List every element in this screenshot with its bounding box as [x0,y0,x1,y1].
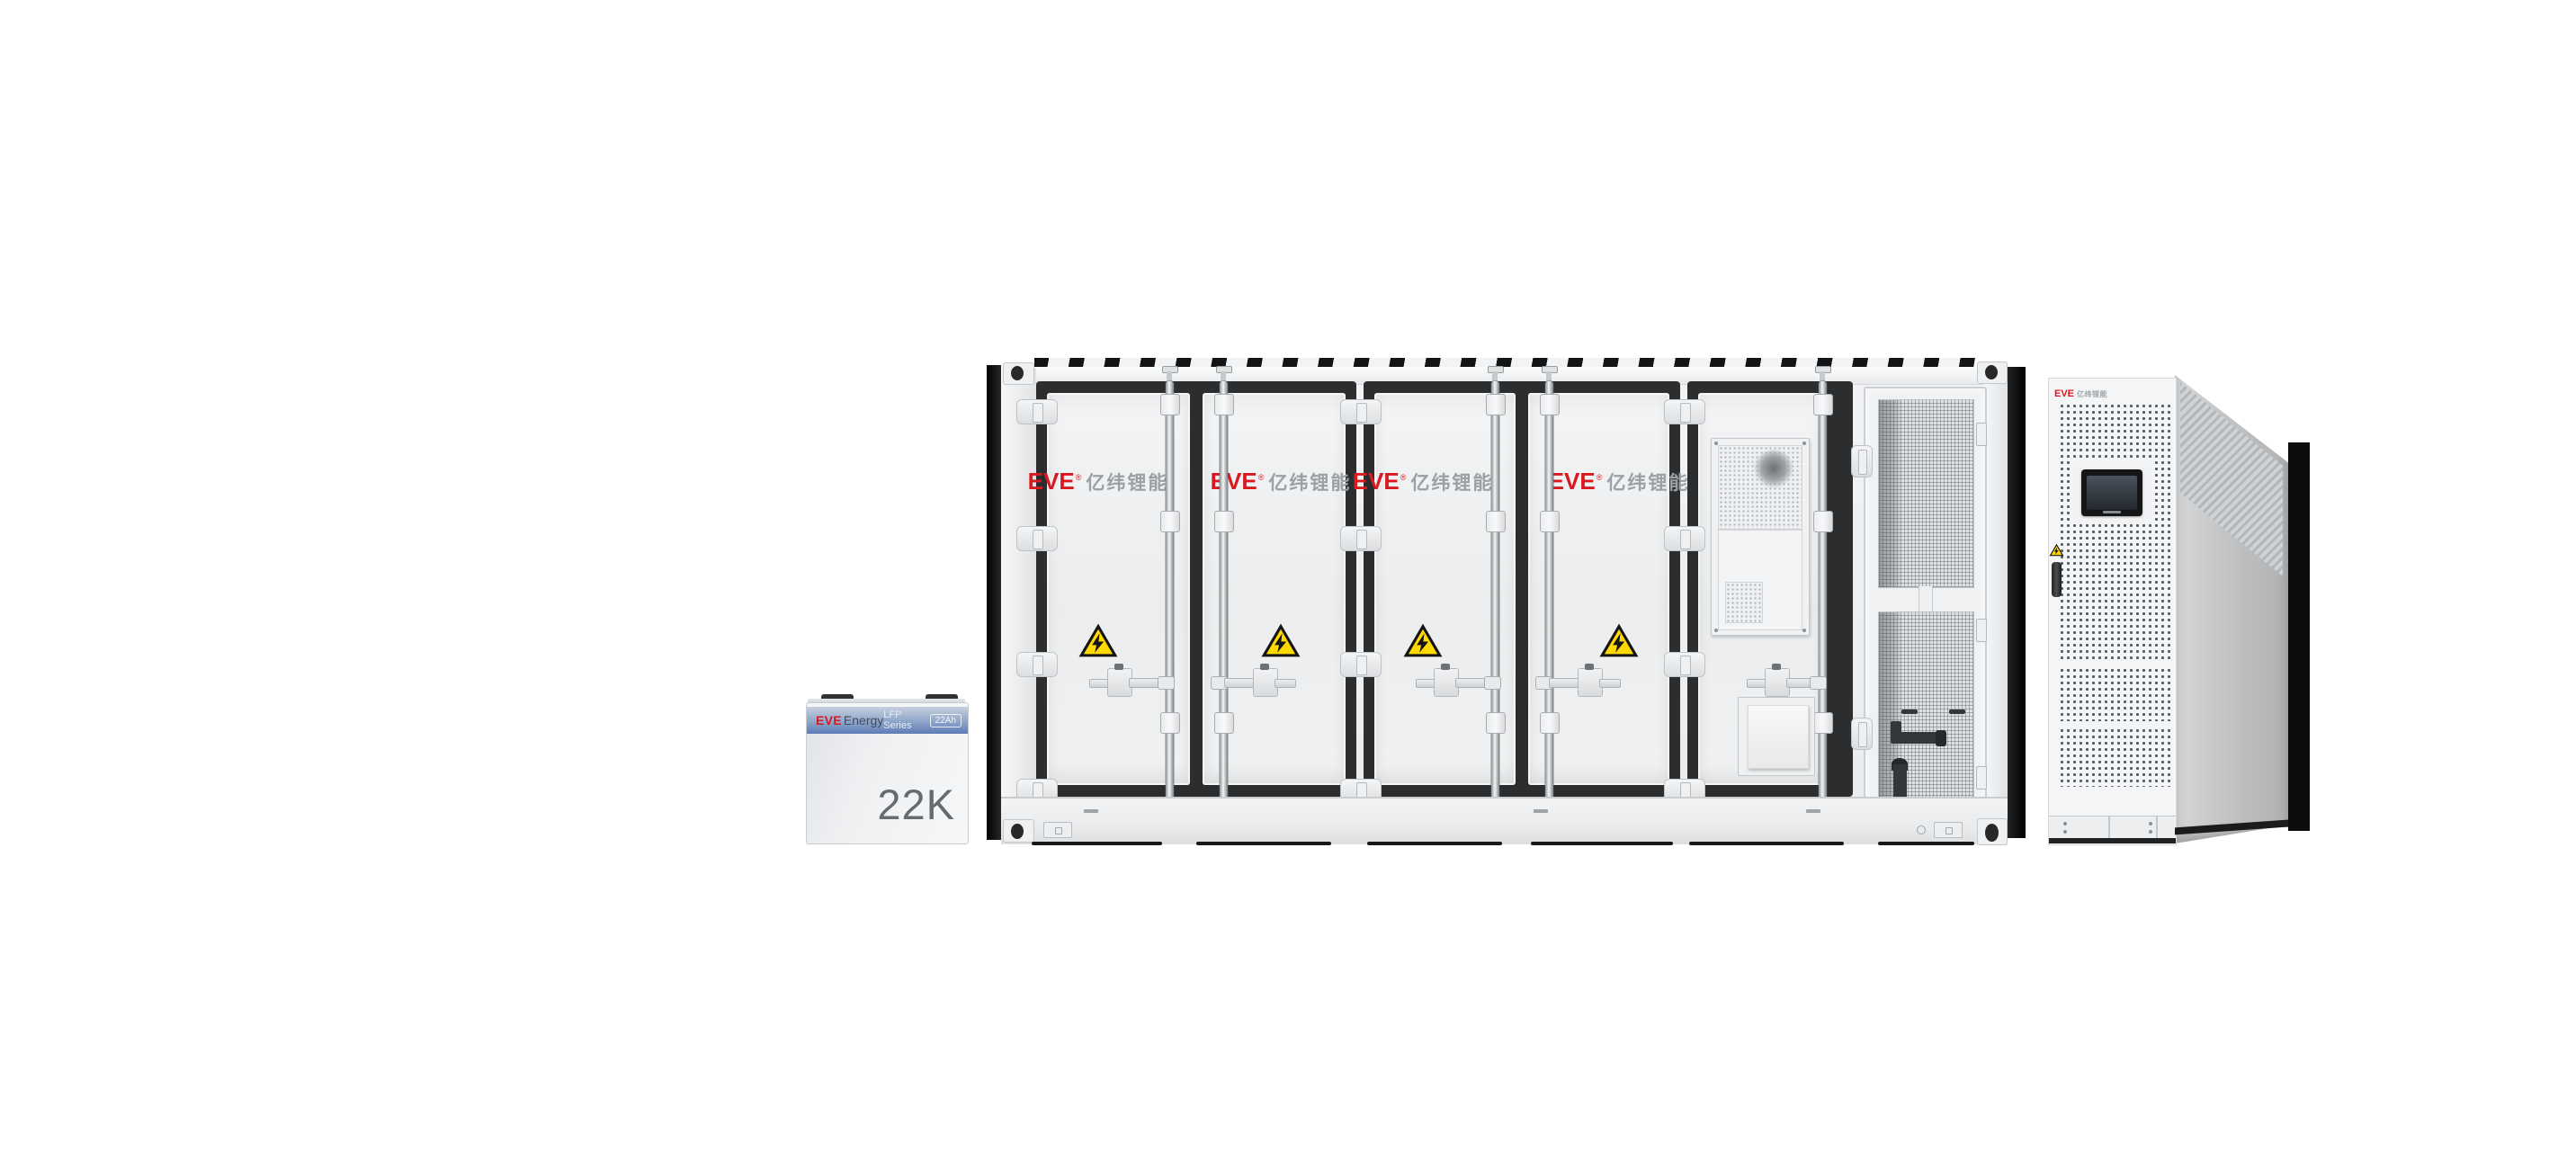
mesh-door-latch-tab [1976,619,1987,642]
door-lock-rod [1545,381,1553,818]
hinge-pin [1356,403,1367,423]
rod-bracket [1160,511,1180,532]
door-handle [1599,679,1621,688]
pcs-right-back-edge [2288,442,2310,831]
corner-casting-bottom-left [1003,819,1034,843]
brand-reg-mark: ® [1258,473,1265,482]
latch-dot [1945,827,1953,834]
brand-cn: 亿纬锂能 [1086,468,1168,495]
rod-bracket [1813,511,1833,532]
corner-casting-top-right [1977,361,2008,384]
hinge-pin [1858,722,1867,747]
container-brand-logo-3: EVE®亿纬锂能 [1355,468,1490,495]
pcs-door-handle [2052,562,2062,597]
pcs-screen-label-dash [2103,511,2121,513]
container-brand-logo-4: EVE®亿纬锂能 [1552,468,1686,495]
door-handle [1275,679,1296,688]
casting-hole-icon [1985,365,1998,379]
door-handle-cap [1158,676,1175,690]
container-brand-logo-1: EVE®亿纬锂能 [1031,468,1166,495]
hvac-vent-square [1725,582,1763,623]
battery-case: EVE Energy LFP Series 22Ah 22K [806,702,969,844]
brand-reg-mark: ® [1076,473,1082,482]
brand-latin: EVE [1549,468,1596,495]
hinge-pin [1033,530,1043,549]
hinge-pin [1356,530,1367,549]
door-handle-bolt [1772,664,1781,670]
battery-series-label: LFP Series [883,709,922,731]
screw-icon [1802,442,1806,445]
base-latch [1934,822,1963,838]
base-latch [1043,822,1072,838]
product-render-scene: EVE Energy LFP Series 22Ah 22K EVE®亿纬锂能 … [0,0,2576,1151]
door-hinge [1664,526,1705,551]
mesh-crossbar-strut [1919,586,1933,611]
door-handle-arm [1129,678,1161,688]
battery-brand-logo: EVE [816,713,842,727]
vent-box-cover [1748,705,1809,769]
pipe-vertical [1893,764,1907,800]
casting-hole-icon [1011,824,1024,839]
hinge-pin [1858,450,1867,475]
rod-bracket [1813,712,1833,734]
rod-bracket [1214,712,1234,734]
door-handle-arm [1549,678,1581,688]
door-handle-bolt [1114,664,1123,670]
screw-icon [1714,629,1718,632]
ground-shadow [1196,842,1331,845]
door-hinge [1664,399,1705,424]
ground-shadow [1689,842,1844,845]
mesh-panel-top [1878,399,1974,588]
container-brand-logo-2: EVE®亿纬锂能 [1213,468,1348,495]
kick-panel-divider [2156,816,2158,839]
rod-bracket [1160,394,1180,415]
ground-shadow [1531,842,1673,845]
container-right-side-edge [2008,367,2026,838]
hinge-pin [1033,656,1043,675]
rod-bracket [1214,511,1234,532]
door-hinge [1340,526,1382,551]
battery-header-band: EVE Energy LFP Series 22Ah [807,707,968,735]
base-dot [1917,825,1926,834]
door-handle-arm [1224,678,1257,688]
door-handle-cap [1810,676,1827,690]
rod-bracket [1486,394,1506,415]
vent-box [1738,697,1815,776]
door-hinge [1016,399,1058,424]
rod-bracket [1813,394,1833,415]
hinge-pin [1680,530,1691,549]
battery-capacity-badge: 22Ah [930,714,962,727]
door-handle-bolt [1441,664,1450,670]
door-hinge [1016,652,1058,677]
battery-brand-suffix: Energy [844,713,883,727]
rod-bracket [1540,712,1560,734]
screw-icon [2149,830,2152,834]
door-hinge [1340,399,1382,424]
screw-icon [1802,629,1806,632]
pcs-perforated-panel-3 [2059,727,2172,787]
mesh-door [1864,387,1987,819]
brand-cn: 亿纬锂能 [1410,468,1493,495]
door-handle-bolt [1260,664,1269,670]
door-handle-bolt [1585,664,1594,670]
pipe-dash [1901,709,1918,714]
pcs-screen-panel [2087,476,2137,510]
door-lock-rod [1166,381,1174,818]
door-lock-rod [1220,381,1228,818]
pcs-bottom-edge [2049,838,2176,843]
warning-triangle-icon [1260,622,1301,658]
mesh-door-latch-tab [1976,766,1987,790]
rod-bracket [1214,394,1234,415]
pcs-brand-logo: EVE 亿纬锂能 [2054,388,2107,399]
mesh-door-latch-tab [1976,423,1987,446]
corner-casting-top-left [1003,362,1034,385]
brand-reg-mark: ® [1400,473,1407,482]
hinge-pin [1680,656,1691,675]
warning-triangle-icon [2049,543,2064,557]
ground-shadow [1367,842,1502,845]
pipe-dash [1949,709,1965,714]
rod-bracket [1486,511,1506,532]
warning-triangle-icon [1078,622,1119,658]
mesh-door-hinge [1851,718,1873,750]
ground-shadow [1878,842,1974,845]
pcs-cabinet-front: EVE 亿纬锂能 [2048,378,2177,845]
base-vent-dash [1534,809,1548,813]
screw-icon [1714,442,1718,445]
brand-latin: EVE [1211,468,1257,495]
hinge-pin [1356,656,1367,675]
door-hinge [1340,652,1382,677]
door-handle-arm [1455,678,1488,688]
brand-cn: 亿纬锂能 [2077,389,2107,399]
door-lock-rod [1491,381,1499,818]
hinge-pin [1680,403,1691,423]
rod-bracket [1540,511,1560,532]
base-vent-dash [1084,809,1098,813]
container-right-corner-post [1983,368,2008,841]
rod-bracket [1160,712,1180,734]
latch-dot [1055,827,1062,834]
door-hinge [1664,652,1705,677]
pcs-kick-panel [2049,816,2176,839]
screw-icon [2063,822,2067,825]
corner-casting-bottom-right [1977,818,2008,845]
container-left-side-edge [987,365,1001,840]
pcs-perforated-panel-1 [2059,403,2172,660]
fan-icon [1753,450,1794,491]
door-lock-rod [1819,381,1827,818]
door-hinge [1016,526,1058,551]
brand-latin: EVE [2054,388,2074,399]
brand-cn: 亿纬锂能 [1268,468,1351,495]
container-left-corner-post [1001,368,1036,841]
pcs-display-screen [2081,469,2142,516]
pipe-fitting [1936,730,1946,746]
casting-hole-icon [1985,824,1999,842]
container-base-rail [1001,797,2008,844]
rod-bracket [1540,394,1560,415]
kick-panel-divider [2108,816,2110,839]
brand-cn: 亿纬锂能 [1606,468,1689,495]
brand-reg-mark: ® [1597,473,1603,482]
screw-icon [2063,830,2067,834]
ground-shadow [1032,842,1162,845]
battery-front-panel: 22K [807,734,968,843]
rod-bracket [1486,712,1506,734]
mesh-door-hinge [1851,445,1873,477]
screw-icon [2149,822,2152,825]
casting-hole-icon [1011,366,1024,380]
base-vent-dash [1806,809,1820,813]
brand-latin: EVE [1028,468,1075,495]
hinge-pin [1033,403,1043,423]
brand-latin: EVE [1353,468,1400,495]
hvac-unit [1711,438,1810,636]
door-handle-cap [1484,676,1501,690]
pcs-perforated-panel-2 [2059,667,2172,721]
pipe-horizontal [1891,732,1942,744]
battery-model-label: 22K [877,783,955,825]
warning-triangle-icon [1402,622,1444,658]
warning-triangle-icon [1598,622,1640,658]
